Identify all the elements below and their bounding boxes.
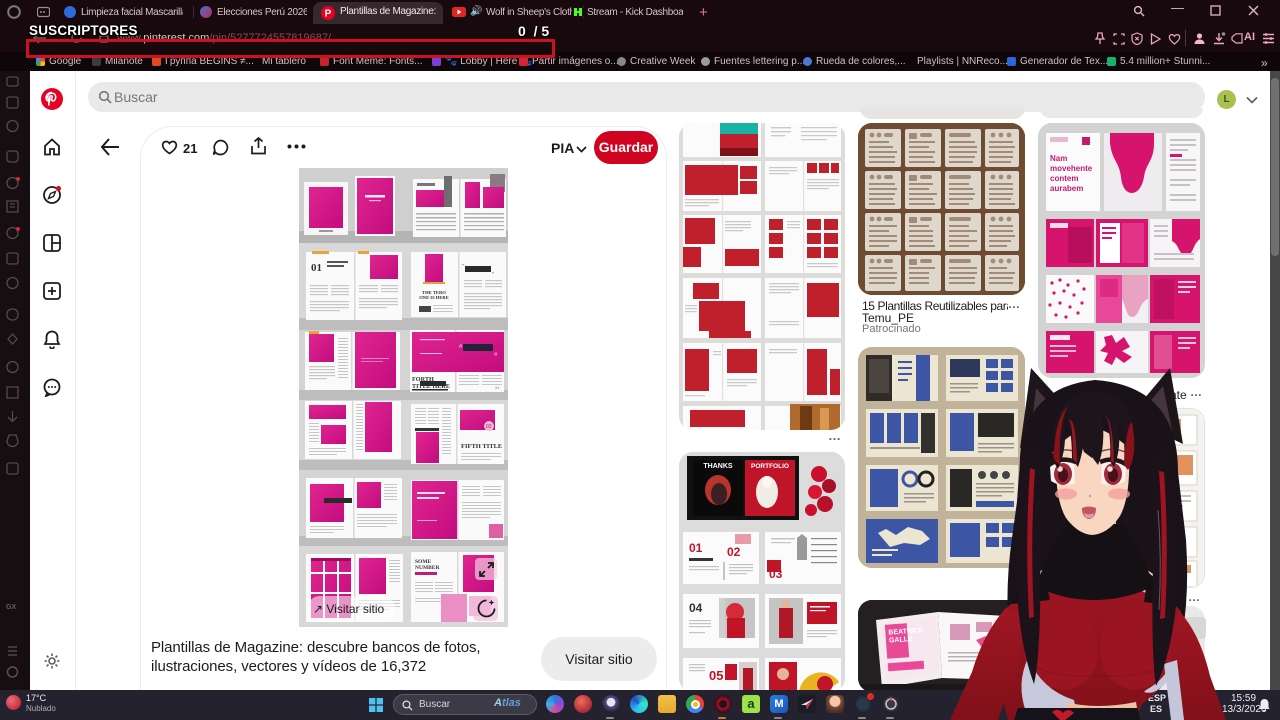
svg-text:PORTFOLIO: PORTFOLIO <box>751 463 789 470</box>
svg-text:P: P <box>325 9 332 20</box>
svg-text:THANKS: THANKS <box>703 463 732 470</box>
svg-text:01: 01 <box>311 262 322 274</box>
svg-text:GX: GX <box>6 604 16 611</box>
svg-text:02: 02 <box>727 545 741 559</box>
svg-text:FIFTH TITLE: FIFTH TITLE <box>461 443 502 450</box>
svg-text:54: 54 <box>495 385 500 390</box>
svg-text:aurabem: aurabem <box>1050 184 1083 193</box>
svg-text:Nam: Nam <box>1050 154 1067 163</box>
svg-text:movehente: movehente <box>1050 164 1093 173</box>
svg-text:01: 01 <box>689 541 703 555</box>
svg-text:05: 05 <box>709 668 723 683</box>
svg-text:contem: contem <box>1050 174 1078 183</box>
svg-text:ONE IS HERE: ONE IS HERE <box>419 295 449 300</box>
svg-text:02: 02 <box>486 424 492 430</box>
svg-text:04: 04 <box>689 601 703 615</box>
svg-text:NUMBER: NUMBER <box>415 565 440 571</box>
